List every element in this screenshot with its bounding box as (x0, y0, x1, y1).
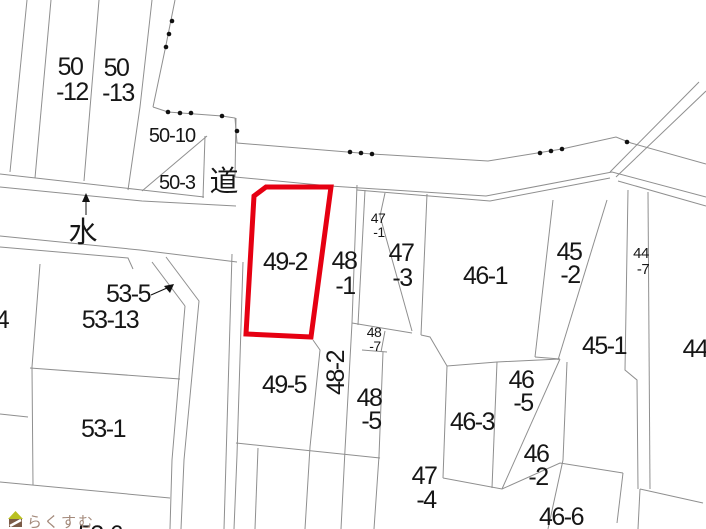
boundary-line (381, 331, 385, 352)
boundary-point-dot (235, 129, 240, 134)
boundary-line (640, 489, 703, 503)
parcel-label-53-1: 53-1 (81, 415, 126, 443)
parcel-label-45-2: -2 (560, 261, 580, 289)
map-canvas: 50 -12 50 -13 50-10 50-3 道 水 49-2 48 -1 … (0, 0, 706, 529)
parcel-label-49-5: 49-5 (262, 371, 307, 399)
boundary-line (421, 194, 427, 335)
boundary-line (443, 366, 447, 478)
diagonal-road-line (616, 91, 706, 177)
boundary-line (0, 482, 170, 498)
boundary-line (224, 254, 232, 529)
parcel-label-46-5: -5 (513, 389, 533, 417)
watermark-house-roof-icon (8, 511, 23, 519)
parcel-label-50-3: 50-3 (159, 172, 196, 194)
boundary-point-dot (170, 19, 175, 24)
boundary-line (203, 136, 205, 198)
parcel-label-44: 44 (683, 335, 706, 363)
parcel-label-45-1: 45-1 (582, 332, 627, 360)
boundary-line (535, 200, 553, 357)
boundary-point-dot (625, 140, 630, 145)
boundary-line (153, 0, 175, 107)
cadastral-map: 50 -12 50 -13 50-10 50-3 道 水 49-2 48 -1 … (0, 0, 706, 529)
parcel-label-53-5: 53-5 (106, 280, 151, 308)
parcel-label-46-6: 46-6 (539, 503, 584, 529)
boundary-line (305, 340, 320, 529)
watermark-text: らくすむ (27, 514, 95, 529)
boundary-point-dot (538, 151, 543, 156)
boundary-line (357, 178, 610, 201)
parcel-label-49-2: 49-2 (263, 248, 308, 276)
boundary-point-dot (359, 151, 364, 156)
boundary-line (648, 192, 650, 489)
parcel-label-50-13: -13 (102, 79, 134, 107)
parcel-label-50-13: 50 (104, 54, 129, 82)
parcel-label-48-1: 48 (332, 247, 357, 275)
boundary-line (32, 264, 40, 485)
boundary-point-dot (167, 32, 172, 37)
boundary-line (152, 262, 185, 306)
parcel-label-48-7: -7 (369, 338, 381, 354)
boundary-line (10, 0, 27, 172)
boundary-point-dot (220, 114, 225, 119)
parcel-label-48-2-rotated: 48-2 (322, 350, 350, 395)
boundary-line (0, 236, 237, 262)
parcel-label-46-2: -2 (528, 463, 548, 491)
boundary-line (358, 190, 365, 325)
boundary-point-dot (189, 111, 194, 116)
parcel-label-48-5: -5 (361, 407, 381, 435)
parcel-53-5-arrow (151, 284, 174, 295)
boundary-line (352, 323, 412, 333)
boundary-line (234, 262, 243, 529)
boundary-point-dot (166, 110, 171, 115)
road-label: 道 (209, 165, 238, 198)
parcel-label-47-1: -1 (373, 224, 385, 240)
boundary-point-dot (164, 45, 169, 50)
parcel-label-50-12: 50 (58, 53, 83, 81)
boundary-line (255, 448, 258, 529)
arrow-head-icon (82, 193, 90, 202)
parcel-label-46-1: 46-1 (463, 262, 508, 290)
boundary-point-dot (178, 111, 183, 116)
arrow-shaft (151, 288, 167, 295)
boundary-point-dots (164, 19, 630, 157)
parcel-labels: 50 -12 50 -13 50-10 50-3 道 水 49-2 48 -1 … (0, 53, 706, 529)
parcel-label-47-3: -3 (392, 264, 412, 292)
water-label-arrow (82, 193, 90, 215)
parcel-label-54-partial: 4 (0, 306, 10, 334)
parcel-label-44-7: -7 (637, 261, 649, 278)
parcel-label-50-10: 50-10 (149, 125, 196, 147)
boundary-line (0, 247, 133, 269)
boundary-line (374, 352, 383, 529)
boundary-point-dot (348, 150, 353, 155)
boundary-line (625, 190, 638, 489)
parcel-label-53-13: 53-13 (82, 306, 139, 334)
boundary-line (35, 0, 51, 178)
boundary-line (535, 357, 560, 359)
parcel-label-48-1: -1 (335, 272, 355, 300)
parcel-label-44-7: 44 (633, 245, 649, 262)
boundary-line (617, 473, 623, 523)
boundary-line (563, 362, 567, 460)
parcel-label-47-4: -4 (416, 486, 437, 514)
parcel-label-50-12: -12 (56, 78, 88, 106)
boundary-point-dot (370, 152, 375, 157)
watermark: らくすむ (8, 511, 95, 529)
boundary-line (638, 489, 640, 529)
waterway-label: 水 (68, 216, 97, 249)
boundary-point-dot (549, 149, 554, 154)
parcel-label-47-3: 47 (389, 239, 414, 267)
boundary-line (421, 335, 560, 366)
boundary-point-dot (560, 147, 565, 152)
boundary-line (30, 368, 180, 379)
parcel-label-46-3: 46-3 (450, 408, 495, 436)
boundary-line (0, 414, 28, 417)
